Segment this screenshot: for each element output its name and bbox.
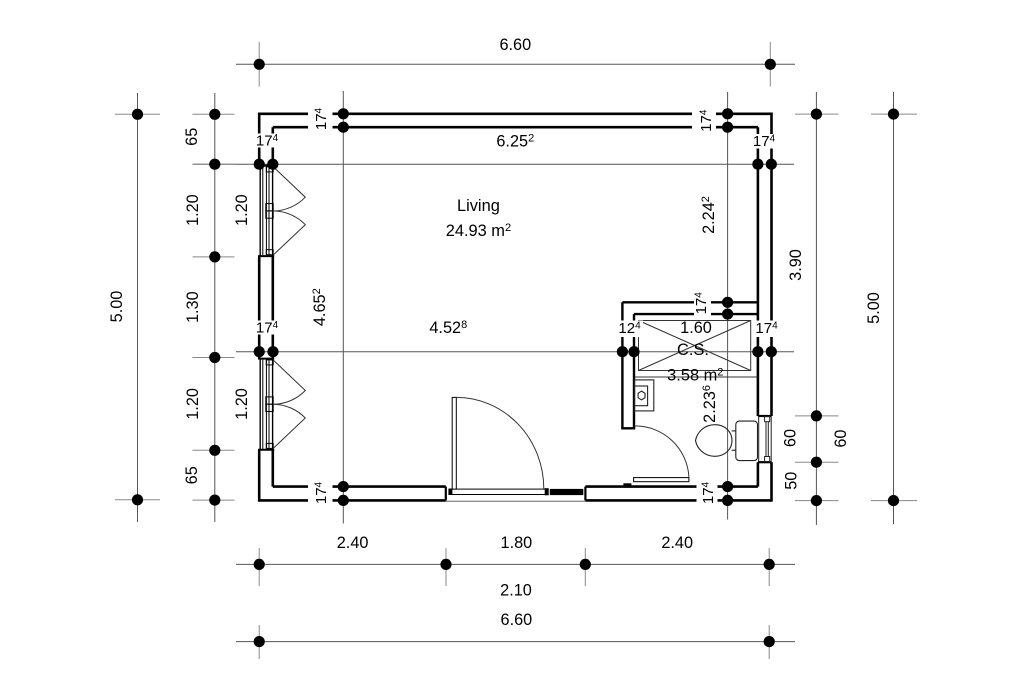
svg-text:1.20: 1.20: [233, 388, 251, 420]
svg-text:60: 60: [782, 429, 800, 447]
svg-text:2.40: 2.40: [337, 534, 369, 552]
svg-text:5.00: 5.00: [108, 291, 126, 323]
svg-text:3.58 m2: 3.58 m2: [667, 367, 723, 385]
svg-text:50: 50: [783, 472, 801, 490]
svg-text:C.S.: C.S.: [677, 341, 709, 359]
svg-text:3.90: 3.90: [787, 249, 805, 281]
svg-text:1.20: 1.20: [184, 388, 202, 420]
svg-text:6.60: 6.60: [499, 36, 531, 54]
svg-text:60: 60: [832, 430, 850, 448]
svg-text:5.00: 5.00: [865, 292, 883, 324]
svg-text:1.60: 1.60: [680, 319, 712, 337]
svg-text:65: 65: [183, 466, 201, 484]
svg-text:1.80: 1.80: [501, 534, 533, 552]
svg-text:1.30: 1.30: [184, 291, 202, 323]
svg-text:24.93 m2: 24.93 m2: [446, 222, 511, 240]
svg-text:2.10: 2.10: [500, 582, 532, 600]
svg-text:2.40: 2.40: [661, 534, 693, 552]
svg-text:6.60: 6.60: [501, 611, 533, 629]
svg-text:Living: Living: [457, 197, 500, 215]
svg-text:65: 65: [183, 128, 201, 146]
svg-text:1.20: 1.20: [184, 194, 202, 226]
svg-text:1.20: 1.20: [233, 194, 251, 226]
